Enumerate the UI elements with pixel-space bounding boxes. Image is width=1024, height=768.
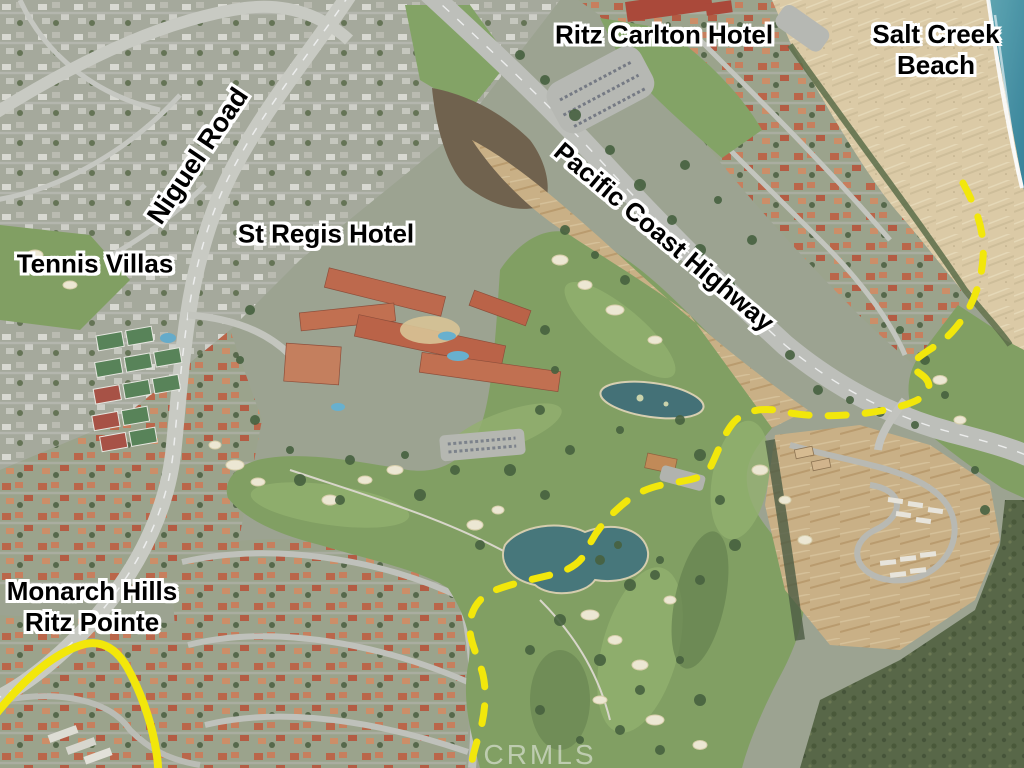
label-monarch-line1: Monarch Hills: [7, 576, 177, 607]
label-salt-creek-beach: Salt Creek Beach: [872, 19, 999, 81]
label-monarch-line2: Ritz Pointe: [7, 607, 177, 638]
label-ritz-carlton-hotel: Ritz Carlton Hotel: [555, 20, 773, 51]
label-monarch-hills-ritz-pointe: Monarch Hills Ritz Pointe: [7, 576, 177, 638]
label-salt-creek-line1: Salt Creek: [872, 19, 999, 50]
watermark: CRMLS: [483, 739, 596, 768]
aerial-map: Ritz Carlton Hotel Salt Creek Beach Nigu…: [0, 0, 1024, 768]
aerial-photo: [0, 0, 1024, 768]
label-salt-creek-line2: Beach: [872, 50, 999, 81]
atmospheric-haze: [0, 0, 1024, 768]
label-tennis-villas: Tennis Villas: [17, 249, 174, 280]
label-st-regis-hotel: St Regis Hotel: [238, 219, 414, 250]
